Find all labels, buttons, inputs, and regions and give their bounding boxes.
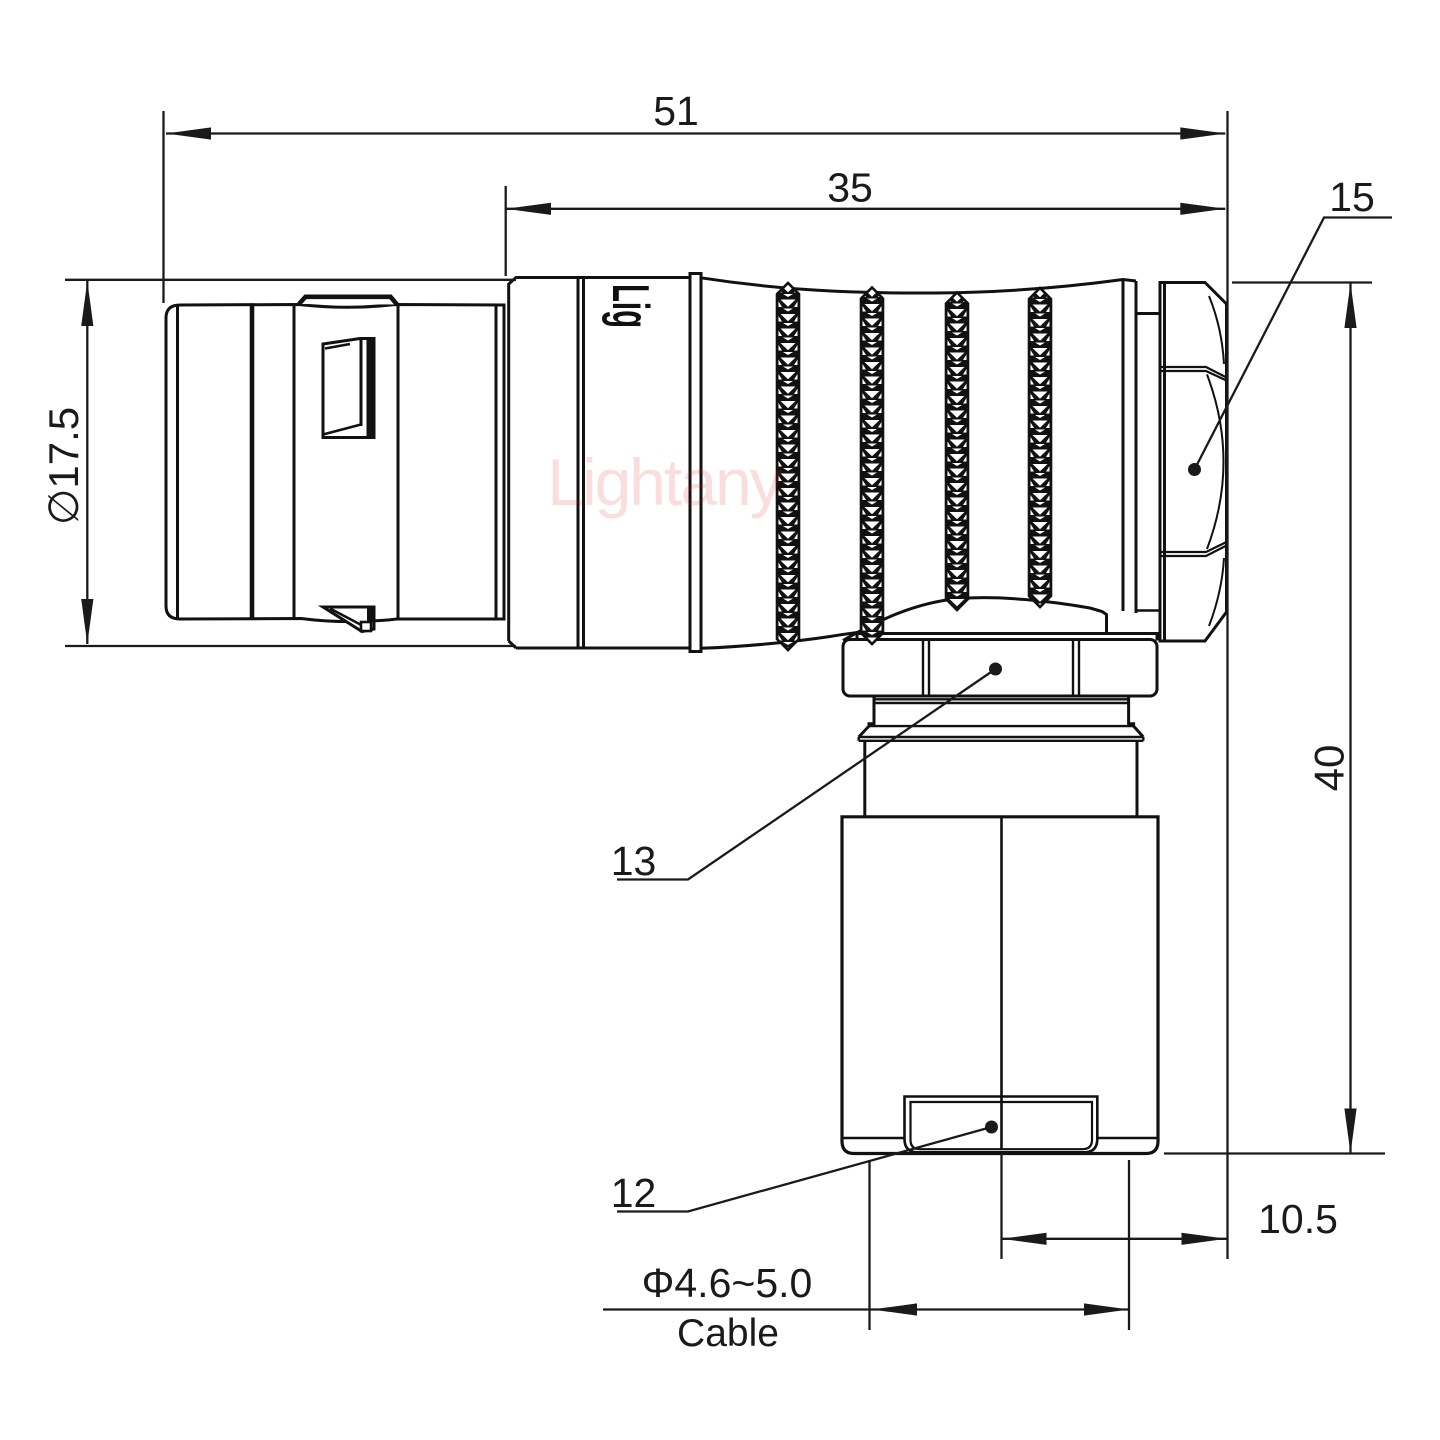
svg-text:10.5: 10.5 bbox=[1258, 1196, 1338, 1242]
svg-text:13: 13 bbox=[611, 838, 657, 884]
svg-text:40: 40 bbox=[1306, 745, 1353, 792]
svg-text:Lightany: Lightany bbox=[547, 445, 783, 519]
svg-text:12: 12 bbox=[611, 1170, 657, 1216]
svg-text:35: 35 bbox=[827, 165, 873, 211]
svg-text:∅17.5: ∅17.5 bbox=[40, 407, 87, 525]
svg-text:Lig: Lig bbox=[601, 284, 659, 328]
svg-text:51: 51 bbox=[653, 88, 699, 134]
svg-text:Cable: Cable bbox=[677, 1312, 779, 1355]
svg-text:Φ4.6~5.0: Φ4.6~5.0 bbox=[642, 1260, 813, 1306]
svg-text:15: 15 bbox=[1329, 174, 1375, 220]
